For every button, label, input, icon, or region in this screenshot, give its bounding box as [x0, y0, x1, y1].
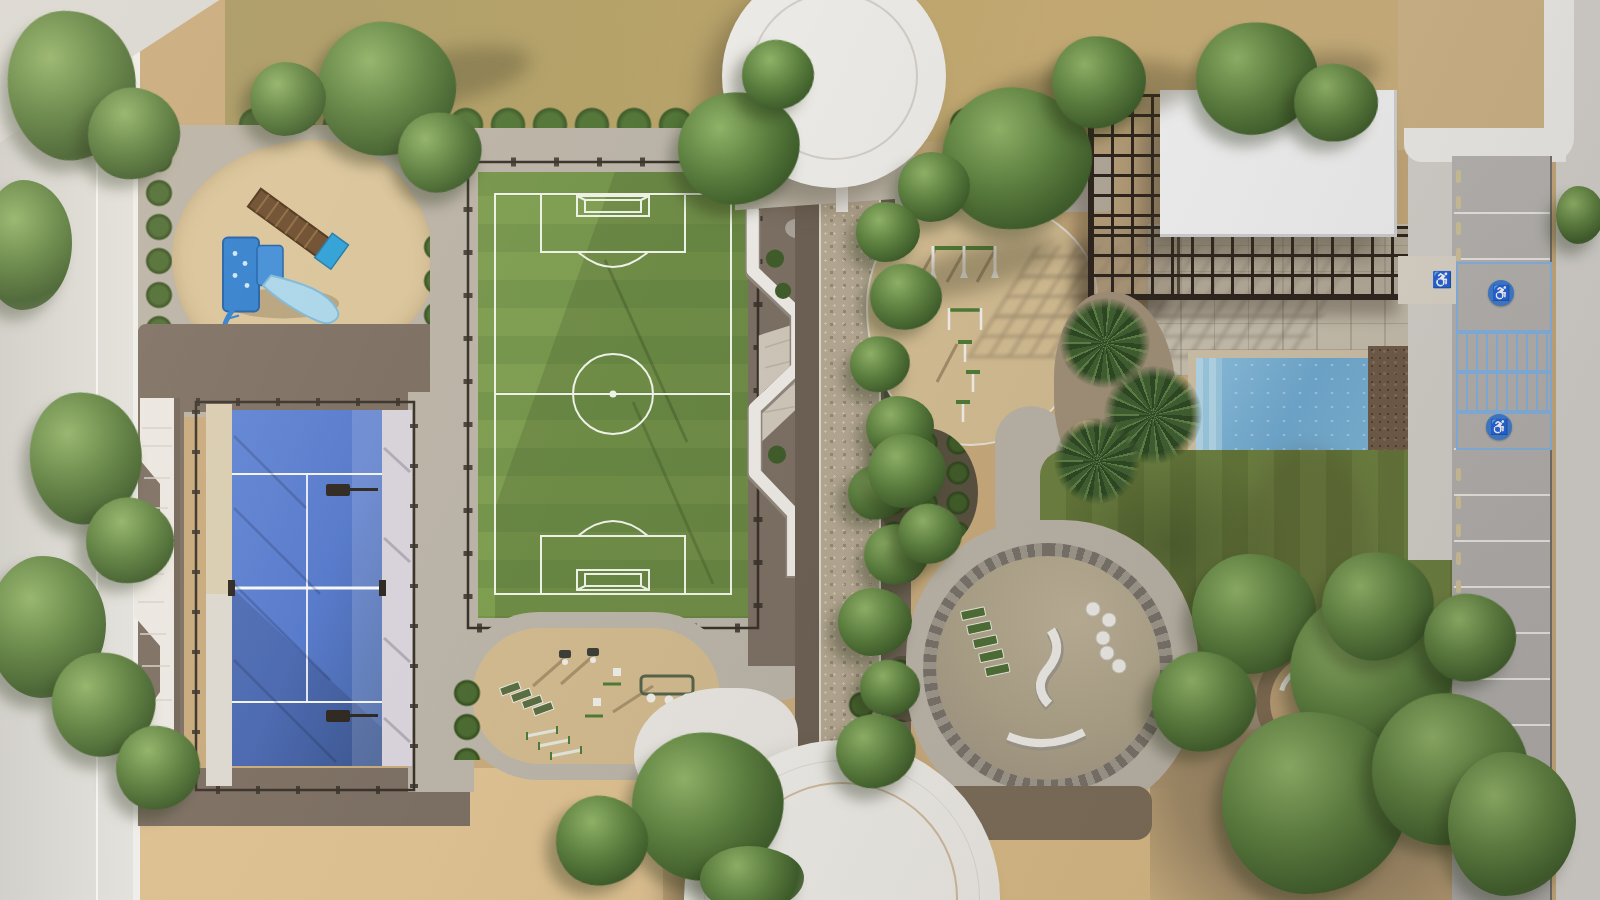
- wheel-stop: [1456, 248, 1461, 261]
- park-aerial-render: ♿ ♿ ♿: [0, 0, 1600, 900]
- wheel-stop: [1456, 524, 1461, 537]
- parking-curb-right: [1544, 0, 1574, 162]
- stall-line: [1454, 258, 1550, 260]
- hatch-zone-2: [1456, 372, 1552, 412]
- plaza-furniture: [936, 556, 1160, 780]
- stall-line: [1454, 494, 1550, 496]
- parking-verge: [1408, 156, 1452, 560]
- swimming-pool: [1196, 358, 1370, 460]
- wheel-stop: [1456, 196, 1461, 209]
- accessible-parking-icon: ♿: [1486, 414, 1512, 440]
- wheel-stop: [1456, 496, 1461, 509]
- accessible-route-marking: ♿: [1432, 270, 1452, 289]
- wheel-stop: [1456, 222, 1461, 235]
- tree: [1556, 186, 1600, 244]
- stall-line: [1454, 540, 1550, 542]
- football-field-graphic: [455, 140, 775, 645]
- wheelchair-glyph: ♿: [1490, 418, 1509, 435]
- hatch-zone-1: [1456, 332, 1552, 372]
- wheelchair-marking-glyph: ♿: [1432, 271, 1452, 288]
- wheel-stop: [1456, 170, 1461, 183]
- football-field: [455, 140, 775, 645]
- wheel-stop: [1456, 580, 1461, 593]
- pergola-east-arm: [1088, 226, 1412, 300]
- wheel-stop: [1456, 468, 1461, 481]
- wheelchair-glyph: ♿: [1492, 284, 1511, 301]
- wheel-stop: [1456, 552, 1461, 565]
- palm-tree: [1054, 418, 1140, 504]
- stall-line: [1454, 212, 1550, 214]
- accessible-parking-icon: ♿: [1488, 280, 1514, 306]
- stall-line: [1454, 586, 1550, 588]
- plaza-furniture-graphic: [936, 556, 1160, 780]
